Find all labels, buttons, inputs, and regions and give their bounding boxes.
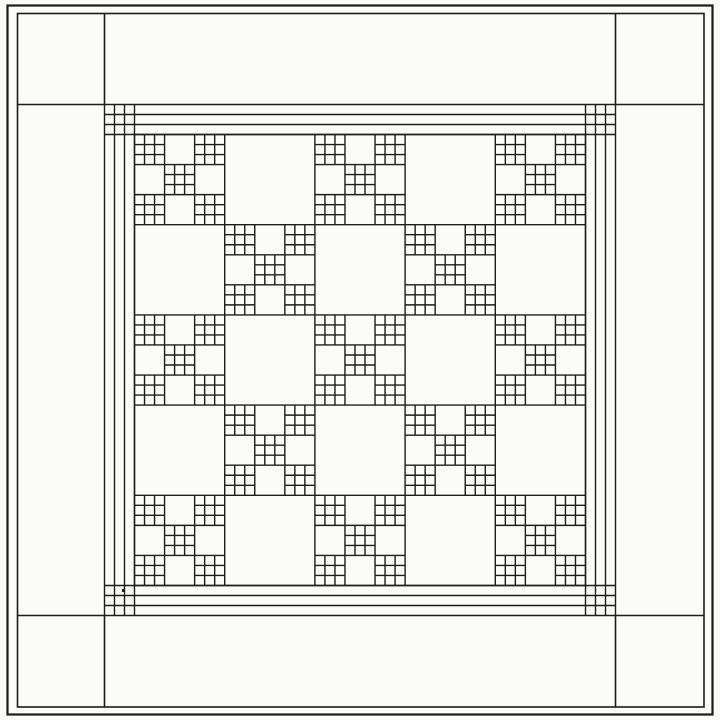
nine-patch-unit <box>315 375 345 405</box>
chain-block <box>495 135 585 225</box>
inner-frame <box>18 14 705 708</box>
nine-patch-unit <box>405 465 435 495</box>
nine-patch-unit <box>315 555 345 585</box>
nine-patch-unit <box>315 315 345 345</box>
nine-patch-unit <box>375 495 405 525</box>
nine-patch-unit <box>375 315 405 345</box>
nine-patch-unit <box>555 555 585 585</box>
chain-block <box>315 315 405 405</box>
nine-patch-unit <box>165 165 195 195</box>
nine-patch-unit <box>555 315 585 345</box>
chain-block <box>225 405 315 495</box>
plain-block <box>135 225 225 315</box>
nine-patch-unit <box>375 135 405 165</box>
plain-block <box>495 405 585 495</box>
chain-block <box>405 405 495 495</box>
nine-patch-unit <box>135 555 165 585</box>
chain-block <box>495 495 585 585</box>
chain-block <box>315 135 405 225</box>
nine-patch-unit <box>315 195 345 225</box>
nine-patch-unit <box>195 375 225 405</box>
nine-patch-unit <box>225 465 255 495</box>
scan-speck <box>122 589 125 592</box>
nine-patch-unit <box>285 285 315 315</box>
nine-patch-unit <box>495 495 525 525</box>
plain-block <box>405 135 495 225</box>
nine-patch-unit <box>495 375 525 405</box>
nine-patch-unit <box>495 315 525 345</box>
nine-patch-unit <box>525 165 555 195</box>
scan-speck-dot <box>122 589 125 592</box>
nine-patch-unit <box>555 495 585 525</box>
plain-block <box>315 405 405 495</box>
plain-block <box>495 225 585 315</box>
nine-patch-unit <box>195 195 225 225</box>
nine-patch-unit <box>285 465 315 495</box>
nine-patch-unit <box>465 465 495 495</box>
nine-patch-unit <box>375 375 405 405</box>
nine-patch-unit <box>165 525 195 555</box>
nine-patch-unit <box>195 315 225 345</box>
nine-patch-unit <box>165 345 195 375</box>
nine-patch-unit <box>225 405 255 435</box>
plain-block <box>225 495 315 585</box>
chain-block <box>405 225 495 315</box>
quilt-field <box>135 135 586 586</box>
nine-patch-unit <box>255 435 285 465</box>
chain-block <box>315 495 405 585</box>
nine-patch-unit <box>555 375 585 405</box>
plain-block <box>225 315 315 405</box>
chain-block <box>135 135 225 225</box>
nine-patch-unit <box>465 225 495 255</box>
plain-block <box>405 315 495 405</box>
nine-patch-unit <box>555 195 585 225</box>
nine-patch-unit <box>405 285 435 315</box>
nine-patch-unit <box>555 135 585 165</box>
nine-patch-unit <box>405 405 435 435</box>
nine-patch-unit <box>135 495 165 525</box>
nine-patch-unit <box>465 405 495 435</box>
nine-patch-unit <box>195 555 225 585</box>
quilt-frames <box>8 6 713 715</box>
nine-patch-unit <box>285 225 315 255</box>
nine-patch-unit <box>285 405 315 435</box>
plain-block <box>405 495 495 585</box>
nine-patch-unit <box>345 165 375 195</box>
nine-patch-unit <box>135 315 165 345</box>
nine-patch-unit <box>435 255 465 285</box>
nine-patch-unit <box>315 495 345 525</box>
chain-block <box>225 225 315 315</box>
plain-block <box>225 135 315 225</box>
nine-patch-unit <box>525 525 555 555</box>
nine-patch-unit <box>525 345 555 375</box>
nine-patch-unit <box>255 255 285 285</box>
quilt-diagram-svg <box>0 0 720 720</box>
nine-patch-unit <box>405 225 435 255</box>
chain-block <box>135 315 225 405</box>
outer-frame <box>8 6 713 715</box>
nine-patch-unit <box>375 555 405 585</box>
nine-patch-unit <box>435 435 465 465</box>
nine-patch-unit <box>345 525 375 555</box>
nine-patch-unit <box>495 135 525 165</box>
nine-patch-unit <box>495 555 525 585</box>
chain-block <box>495 315 585 405</box>
nine-patch-unit <box>465 285 495 315</box>
border-band-corner-squares <box>18 14 705 708</box>
nine-patch-unit <box>135 195 165 225</box>
plain-block <box>135 405 225 495</box>
plain-block <box>315 225 405 315</box>
nine-patch-unit <box>345 345 375 375</box>
nine-patch-unit <box>225 285 255 315</box>
nine-patch-unit <box>135 375 165 405</box>
field-block-grid <box>135 135 586 586</box>
striped-border <box>105 105 616 616</box>
nine-patch-unit <box>375 195 405 225</box>
nine-patch-unit <box>195 135 225 165</box>
nine-patch-unit <box>315 135 345 165</box>
nine-patch-unit <box>195 495 225 525</box>
nine-patch-unit <box>225 225 255 255</box>
chain-block <box>135 495 225 585</box>
nine-patch-unit <box>495 195 525 225</box>
quilt-pattern-diagram <box>0 0 720 720</box>
nine-patch-unit <box>135 135 165 165</box>
